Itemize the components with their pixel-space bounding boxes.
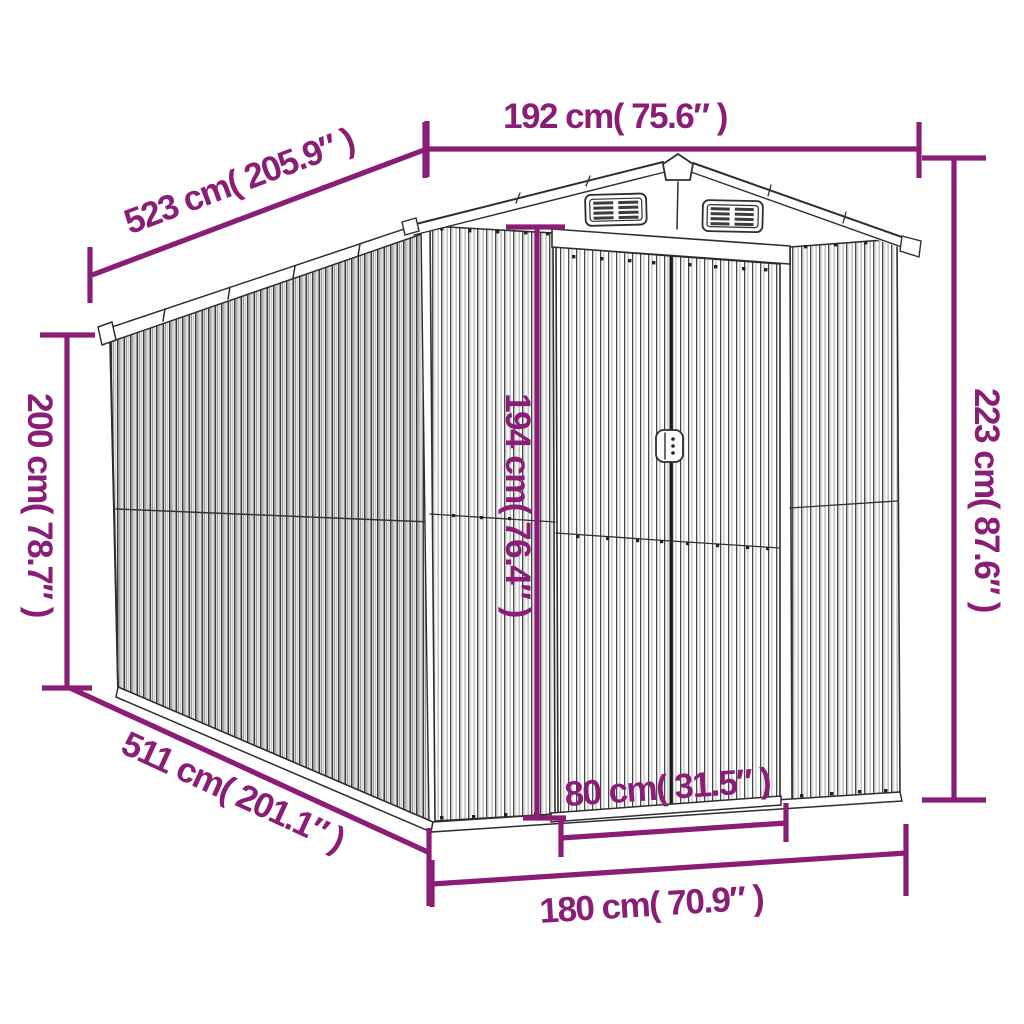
shed-diagram-svg: 192 cm( 75.6″ ) 523 cm( 205.9″ ) 200 cm(… (0, 0, 1024, 1024)
dim-base-width-label: 180 cm( 70.9″ ) (538, 878, 764, 931)
dim-wall-height: 200 cm( 78.7″ ) (20, 335, 95, 688)
gable-vent-left (585, 193, 647, 226)
dim-total-height: 223 cm( 87.6″ ) (922, 158, 1006, 800)
gable-seam (677, 182, 678, 229)
front-wall-right-panel (790, 239, 900, 800)
door-left (556, 247, 671, 816)
dim-base-width: 180 cm( 70.9″ ) (432, 824, 906, 931)
roof-apex-cap (663, 154, 693, 180)
roof-right-cap (900, 236, 921, 257)
dim-total-height-label: 223 cm( 87.6″ ) (967, 388, 1006, 612)
dim-door-height-label: 194 cm( 76.4″ ) (498, 393, 537, 617)
double-doors (556, 247, 780, 816)
dim-wall-height-label: 200 cm( 78.7″ ) (20, 393, 59, 617)
door-handle (656, 430, 683, 462)
door-right (671, 256, 780, 808)
roof-left-tip (402, 218, 419, 235)
dim-roof-width-label: 192 cm( 75.6″ ) (503, 97, 727, 136)
gable-vent-right (702, 200, 763, 232)
eave-rear-cap (98, 322, 116, 345)
dim-ridge-length-label: 523 cm( 205.9″ ) (119, 120, 359, 242)
dimension-diagram: 192 cm( 75.6″ ) 523 cm( 205.9″ ) 200 cm(… (0, 0, 1024, 1024)
